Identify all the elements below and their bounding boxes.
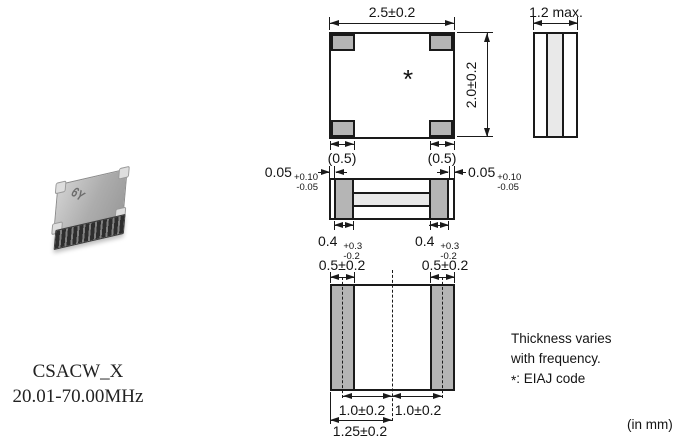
leader-arrow xyxy=(437,172,448,173)
dim-corner-pad-left: (0.5) xyxy=(314,151,370,166)
side-view-ceramic-layer xyxy=(546,34,564,136)
extension-line xyxy=(329,166,330,178)
dim-bottom-pad-width-left: 0.5±0.2 xyxy=(313,258,371,273)
product-frequency-range: 20.01-70.00MHz xyxy=(0,386,156,408)
product-series-label: CSACW_X xyxy=(17,361,139,383)
top-view-pad-bottom-right xyxy=(429,120,453,137)
dim-gap-left-value: 0.05 xyxy=(265,164,292,180)
dim-side-thickness: 1.2 max. xyxy=(519,5,593,20)
dim-edge-to-center: 1.25±0.2 xyxy=(325,424,395,439)
top-view-pad-top-right xyxy=(429,34,453,51)
top-view-pad-top-left xyxy=(331,34,355,51)
centerline-left-electrode xyxy=(342,277,343,398)
dim-terminal-right-value: 0.4 xyxy=(415,233,434,249)
units-label: (in mm) xyxy=(627,417,673,433)
chip-corner-terminal xyxy=(55,180,67,194)
eiaj-code-mark: * xyxy=(403,72,413,86)
dimension-line-pad-left xyxy=(330,144,354,145)
centerline-right-electrode xyxy=(442,277,443,398)
dim-gap-right-value: 0.05 xyxy=(468,164,495,180)
dimension-line-width xyxy=(330,23,454,24)
note-eiaj-text: : EIAJ code xyxy=(516,371,585,386)
product-photo: 6Y xyxy=(32,166,147,266)
dim-gap-right-minus: -0.05 xyxy=(497,183,521,193)
leader-arrow xyxy=(336,172,347,173)
datasheet-dimensions-diagram: 6Y CSACW_X 20.01-70.00MHz * 2.5±0.2 2.0±… xyxy=(0,0,681,443)
dim-corner-pad-right: (0.5) xyxy=(414,151,470,166)
dimension-line-thickness xyxy=(533,23,578,24)
dim-terminal-left-value: 0.4 xyxy=(318,233,337,249)
asterisk-symbol: * xyxy=(511,373,516,389)
dim-top-width: 2.5±0.2 xyxy=(357,5,427,20)
dimension-line-pad-right xyxy=(430,144,454,145)
dimension-line-terminal-right xyxy=(429,225,449,226)
note-thickness-line2: with frequency. xyxy=(511,351,601,367)
dim-gap-right: 0.05+0.10-0.05 xyxy=(468,165,521,192)
leader-arrow xyxy=(455,172,466,173)
dimension-line-edge-to-center xyxy=(330,420,392,421)
dim-pitch-left: 1.0±0.2 xyxy=(334,403,390,418)
dim-pitch-right: 1.0±0.2 xyxy=(390,403,446,418)
dim-gap-left-minus: -0.05 xyxy=(294,183,318,193)
dimension-line-pitch-left xyxy=(343,396,392,397)
note-eiaj: *: EIAJ code xyxy=(511,371,585,387)
dim-top-height: 2.0±0.2 xyxy=(463,62,479,109)
top-view-pad-bottom-left xyxy=(331,120,355,137)
dimension-line-height xyxy=(487,33,488,137)
front-view-ceramic-element xyxy=(354,192,429,207)
chip-marking-text: 6Y xyxy=(68,184,88,204)
leader-arrow xyxy=(318,172,329,173)
front-view-terminal-left xyxy=(334,180,354,218)
dim-gap-left: 0.05+0.10-0.05 xyxy=(248,165,318,192)
front-view-terminal-right xyxy=(429,180,449,218)
note-thickness-line1: Thickness varies xyxy=(511,331,612,347)
extension-line xyxy=(354,141,355,150)
dimension-line-pitch-right xyxy=(392,396,442,397)
chip-corner-terminal xyxy=(118,166,130,180)
extension-line xyxy=(454,17,455,30)
dim-bottom-pad-width-right: 0.5±0.2 xyxy=(416,258,474,273)
dimension-line-terminal-left xyxy=(334,225,354,226)
extension-line xyxy=(454,141,455,150)
extension-line xyxy=(449,166,450,178)
